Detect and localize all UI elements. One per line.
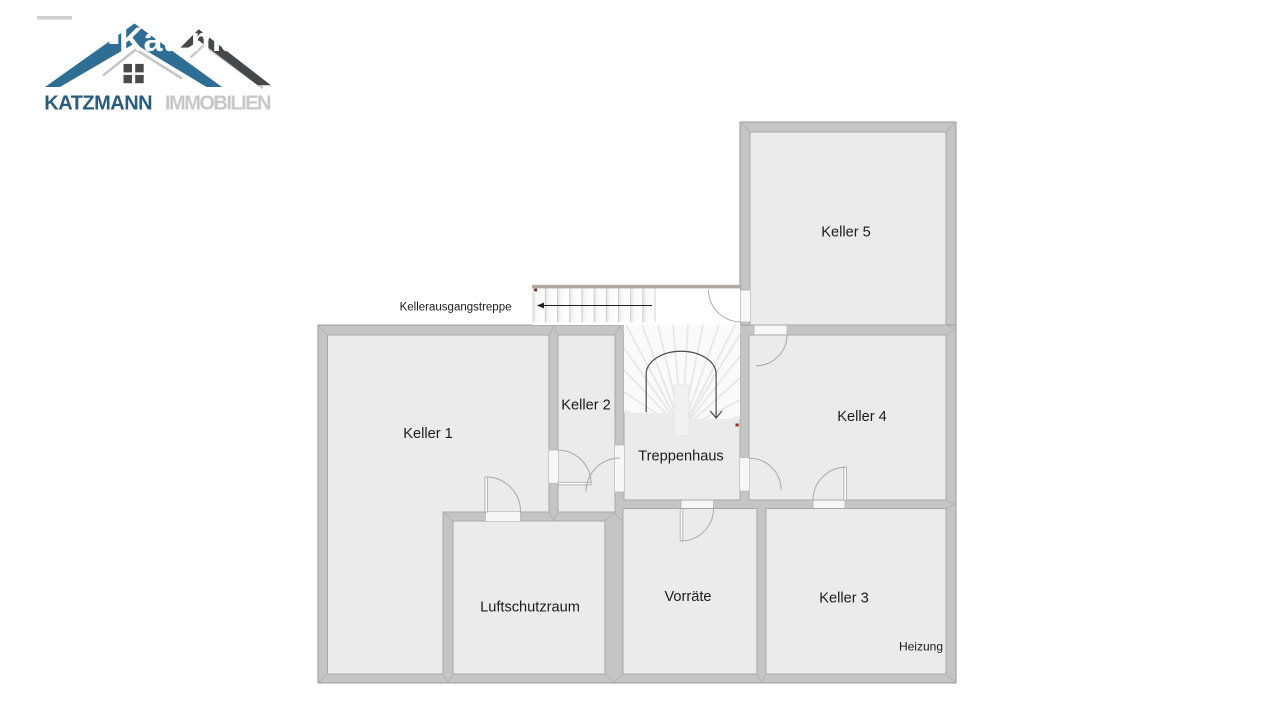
svg-text:IMMOBILIEN: IMMOBILIEN [165, 92, 271, 114]
svg-text:Keller 3: Keller 3 [819, 591, 868, 607]
svg-text:Luftschutzraum: Luftschutzraum [480, 600, 580, 616]
svg-text:Vorräte: Vorräte [664, 589, 711, 605]
svg-text:Katzmann: Katzmann [119, 21, 281, 59]
svg-text:Treppenhaus: Treppenhaus [638, 449, 723, 465]
svg-text:Keller 5: Keller 5 [821, 225, 870, 241]
svg-text:KATZMANN: KATZMANN [44, 92, 152, 114]
svg-text:Keller 4: Keller 4 [837, 409, 886, 425]
svg-text:Heizung: Heizung [899, 640, 943, 654]
svg-text:Keller 1: Keller 1 [403, 426, 452, 442]
svg-text:Keller 2: Keller 2 [561, 398, 610, 414]
svg-text:Kellerausgangstreppe: Kellerausgangstreppe [400, 302, 512, 314]
